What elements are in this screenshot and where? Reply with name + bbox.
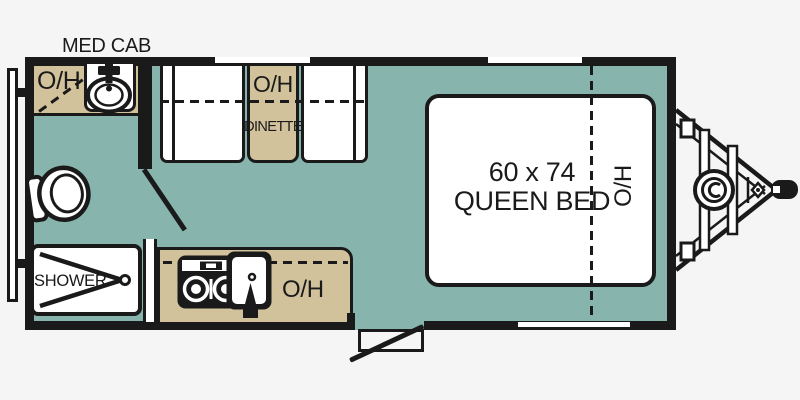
- bathroom-wall: [138, 57, 152, 169]
- dinette-bench-left-back: [172, 66, 175, 161]
- window-dinette: [215, 57, 310, 63]
- dinette-overhead-label: O/H: [247, 71, 299, 98]
- dinette-bench-right-back: [353, 66, 356, 161]
- shower-kitchen-wall: [143, 239, 157, 322]
- entry-wall-stub: [347, 313, 355, 330]
- med-cab-label: MED CAB: [62, 35, 151, 58]
- dinette-slide-dash: [160, 100, 368, 103]
- bed-type-text: QUEEN BED: [425, 187, 639, 216]
- bathroom-overhead-label: O/H: [37, 67, 81, 96]
- bedroom-overhead-label: O/H: [611, 161, 637, 211]
- bumper-bracket-bottom: [17, 259, 25, 268]
- kitchen-overhead-label: O/H: [282, 276, 324, 304]
- bed-size-label: 60 x 74 QUEEN BED: [425, 158, 639, 216]
- toilet-icon: [26, 164, 92, 226]
- window-bedroom-top: [488, 57, 582, 63]
- dinette-label: DINETTE: [244, 119, 302, 135]
- kitchen-sink-icon: [225, 250, 273, 320]
- bathroom-sink-icon: [82, 62, 138, 116]
- floorplan-canvas: MED CAB O/H SHOWER: [0, 0, 800, 400]
- propane-tank-icon: [695, 171, 733, 209]
- bumper-bracket-top: [17, 88, 25, 97]
- tongue-bracket: [681, 120, 694, 137]
- a-frame-tongue: [676, 98, 800, 282]
- dinette-bench-right: [301, 66, 368, 163]
- window-bedroom-bottom: [518, 322, 630, 327]
- bedroom-overhead-dash: [590, 66, 593, 321]
- bed-size-text: 60 x 74: [425, 158, 639, 187]
- hitch-coupler-icon: [771, 180, 798, 199]
- tongue-bracket: [681, 243, 694, 260]
- shower-label: SHOWER: [34, 272, 106, 291]
